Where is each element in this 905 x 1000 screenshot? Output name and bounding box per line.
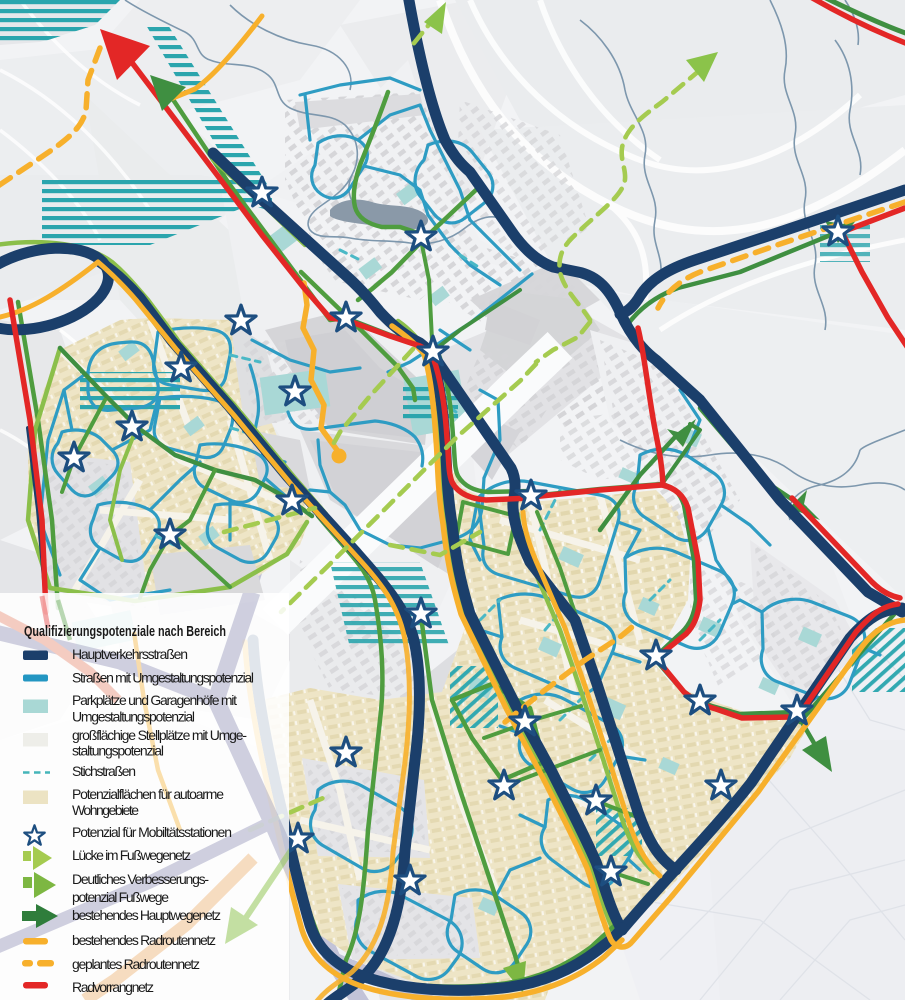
svg-text:potenzial Fußwege: potenzial Fußwege	[72, 889, 169, 905]
svg-text:Lücke im Fußwegenetz: Lücke im Fußwegenetz	[72, 847, 191, 863]
svg-text:Radvorrangnetz: Radvorrangnetz	[72, 979, 154, 995]
svg-text:geplantes Radroutennetz: geplantes Radroutennetz	[72, 956, 200, 972]
svg-text:Umgestaltungspotenzial: Umgestaltungspotenzial	[72, 709, 195, 725]
svg-text:Hauptverkehrsstraßen: Hauptverkehrsstraßen	[72, 646, 188, 662]
svg-text:großflächige Stellplätze mit U: großflächige Stellplätze mit Umge-	[72, 727, 247, 743]
svg-text:Straßen mit Umgestaltungspoten: Straßen mit Umgestaltungspotenzial	[72, 670, 254, 686]
svg-text:Stichstraßen: Stichstraßen	[72, 763, 136, 779]
svg-text:Qualifizierungspotenziale nach: Qualifizierungspotenziale nach Bereich	[24, 624, 226, 640]
svg-text:Potenzial für Mobiltätsstation: Potenzial für Mobiltätsstationen	[72, 824, 232, 840]
svg-text:bestehendes Hauptwegenetz: bestehendes Hauptwegenetz	[72, 907, 221, 923]
svg-text:Potenzialflächen für autoarme: Potenzialflächen für autoarme	[72, 786, 224, 802]
svg-text:Wohngebiete: Wohngebiete	[72, 802, 139, 818]
svg-text:bestehendes Radroutennetz: bestehendes Radroutennetz	[72, 932, 216, 948]
svg-text:staltungspotenzial: staltungspotenzial	[72, 743, 164, 759]
svg-text:Parkplätze und Garagenhöfe mit: Parkplätze und Garagenhöfe mit	[72, 692, 237, 708]
svg-text:Deutliches Verbesserungs-: Deutliches Verbesserungs-	[72, 871, 209, 887]
